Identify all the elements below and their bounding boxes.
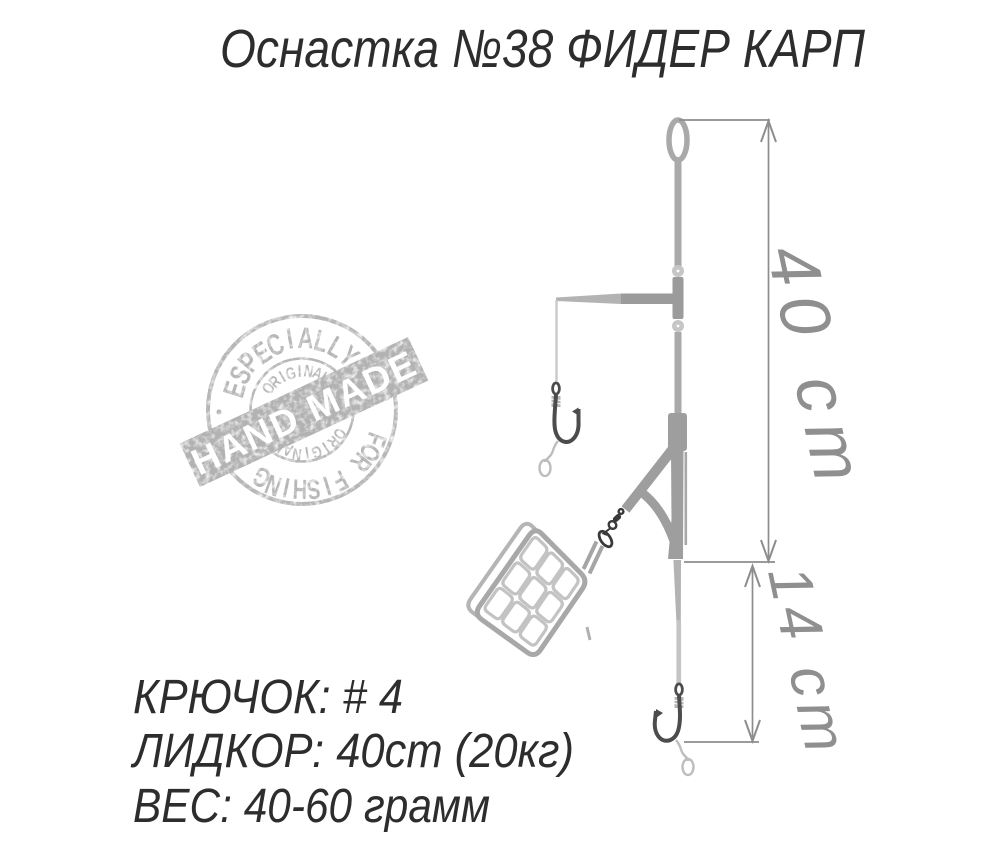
svg-text:I: I	[297, 362, 301, 381]
svg-text:40 cm: 40 cm	[752, 238, 880, 499]
svg-text:Оснастка №38 ФИДЕР КАРП: Оснастка №38 ФИДЕР КАРП	[220, 19, 866, 79]
svg-text:ВЕС: 40-60 грамм: ВЕС: 40-60 грамм	[133, 780, 490, 833]
svg-text:ЛИДКОР: 40cm (20кг): ЛИДКОР: 40cm (20кг)	[130, 725, 574, 778]
svg-text:КРЮЧОК: # 4: КРЮЧОК: # 4	[133, 671, 403, 724]
svg-text:14 cm: 14 cm	[755, 560, 861, 763]
svg-text:H: H	[292, 473, 308, 505]
